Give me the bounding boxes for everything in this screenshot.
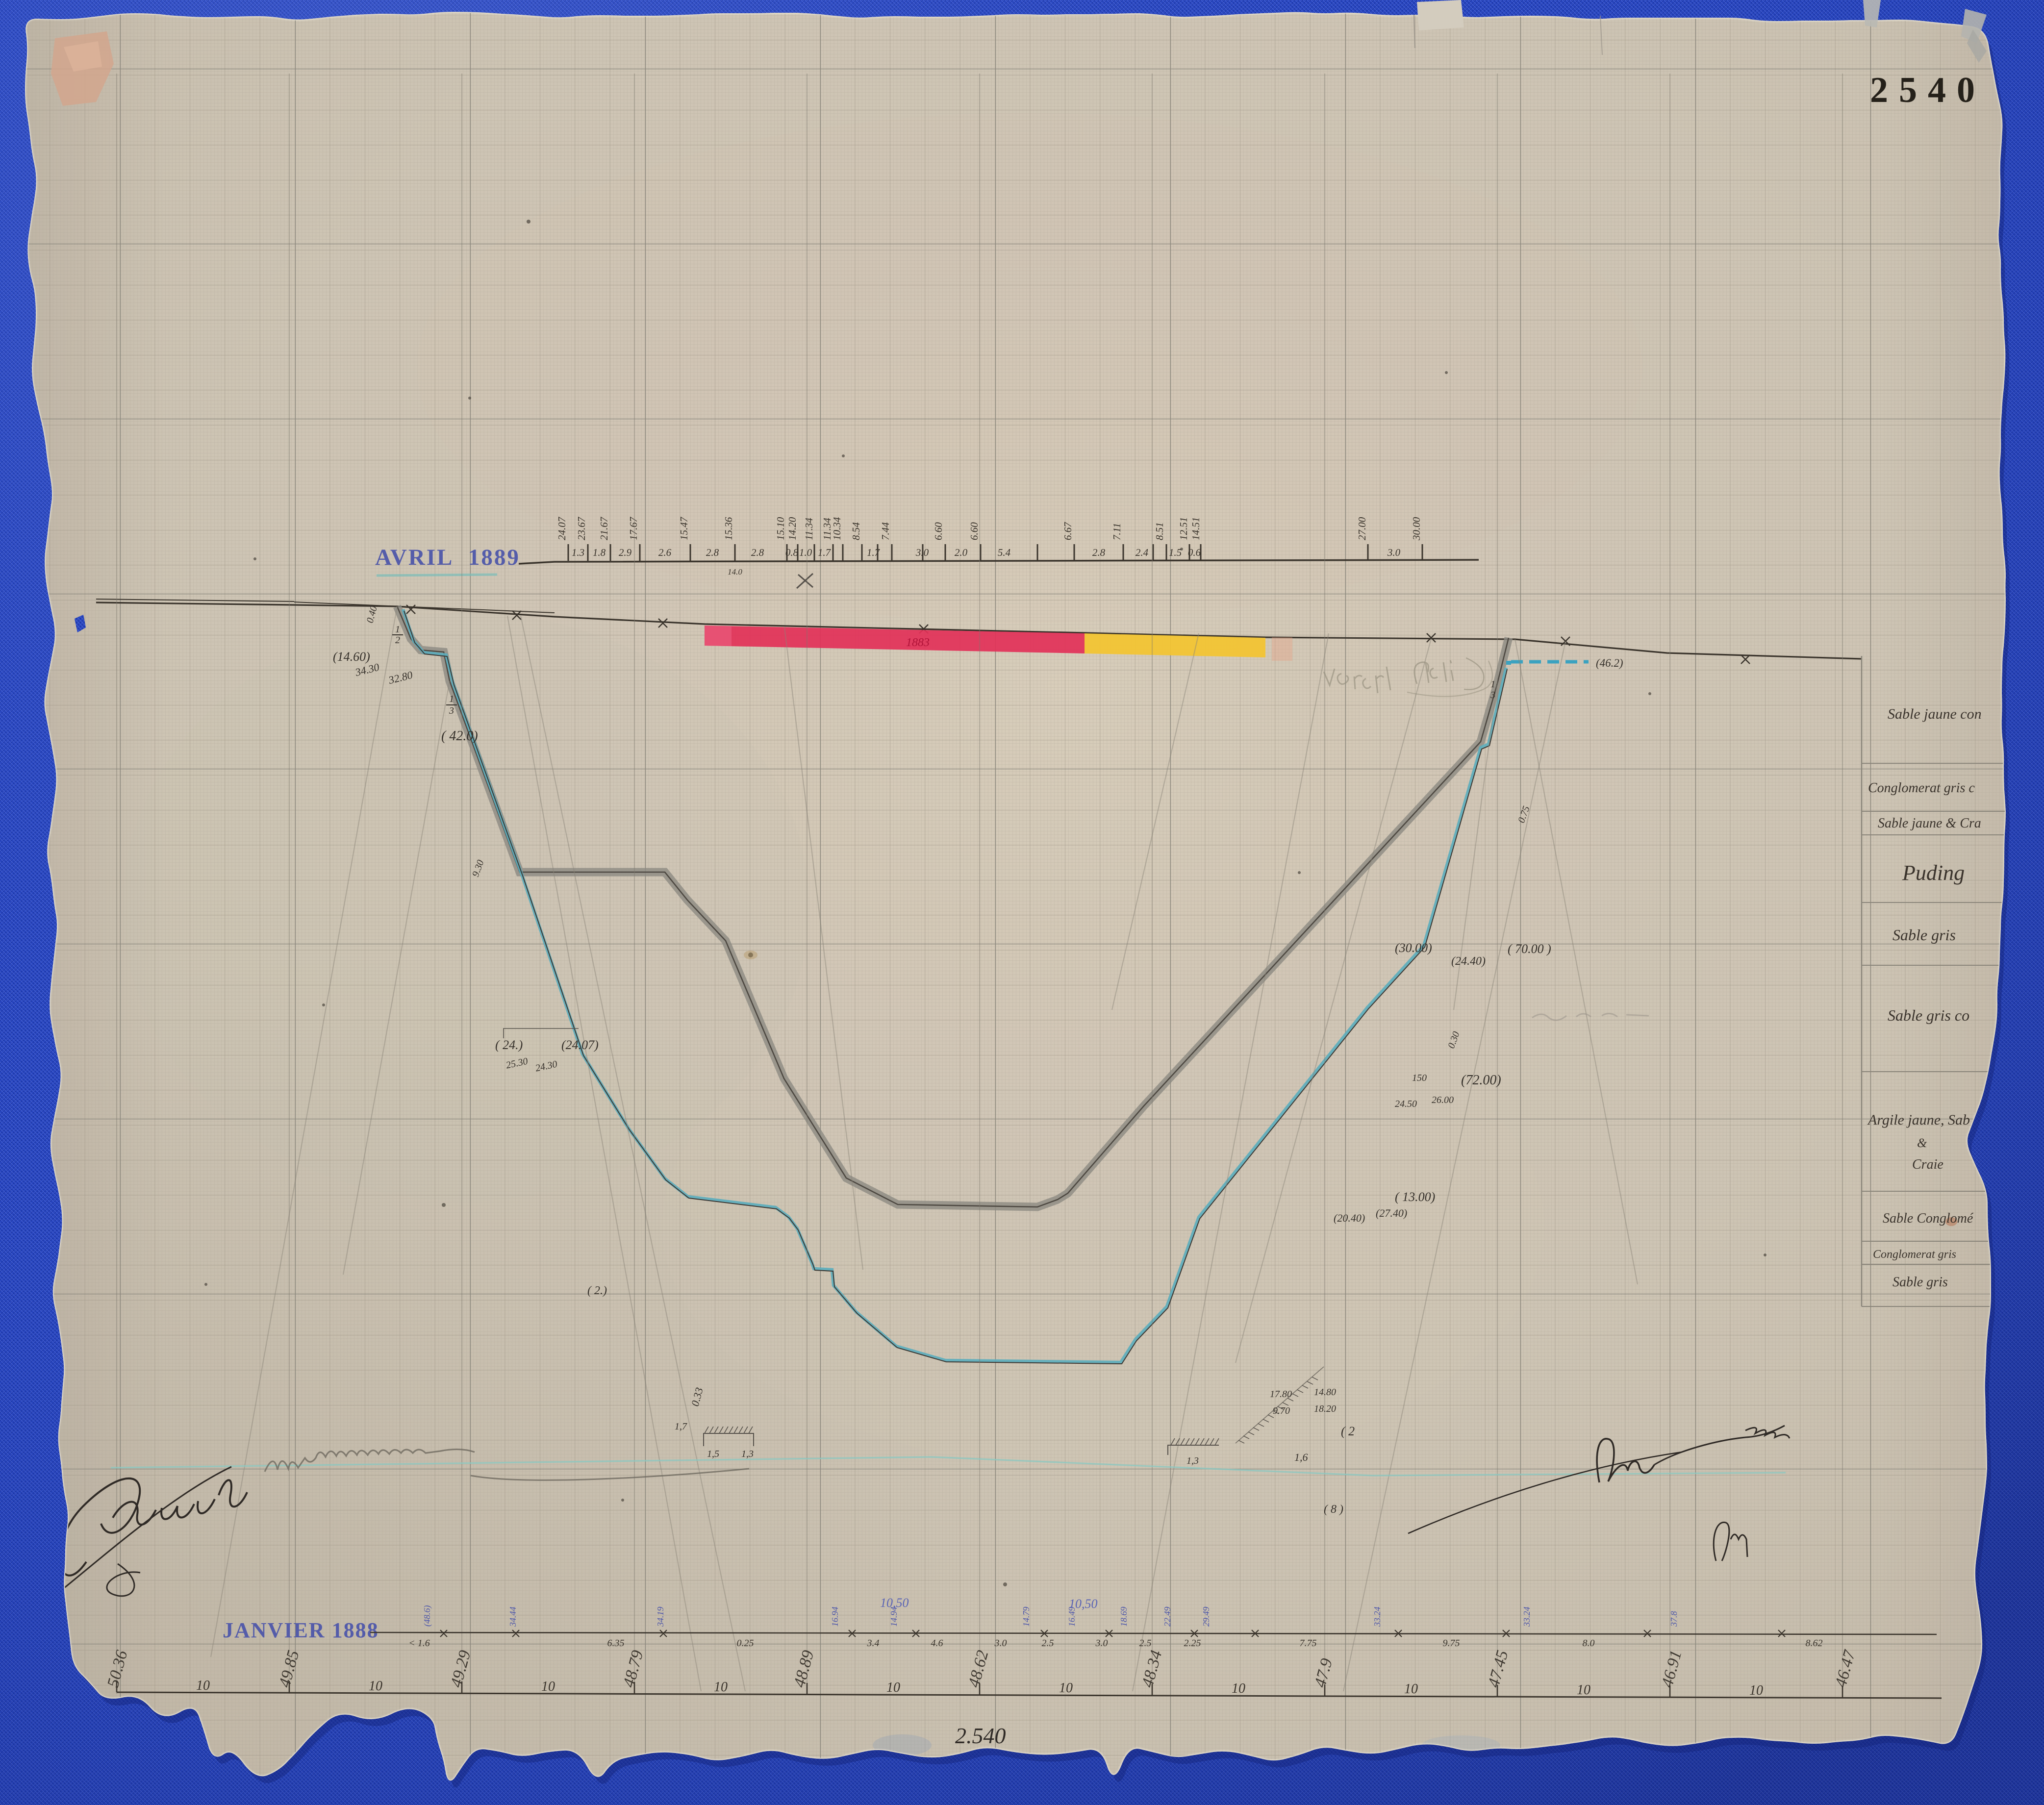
svg-text:24.07: 24.07 [556, 516, 568, 540]
svg-text:8.62: 8.62 [1806, 1638, 1823, 1649]
svg-text:0.25: 0.25 [737, 1638, 754, 1649]
svg-text:0.8: 0.8 [785, 547, 799, 558]
svg-text:< 1.6: < 1.6 [408, 1638, 430, 1649]
svg-text:26.00: 26.00 [1432, 1095, 1454, 1105]
svg-text:10: 10 [1059, 1680, 1073, 1696]
svg-text:(46.2): (46.2) [1596, 657, 1623, 669]
svg-text:(24.07): (24.07) [561, 1038, 599, 1052]
svg-text:12.51: 12.51 [1178, 517, 1189, 540]
svg-text:15.47: 15.47 [678, 516, 690, 540]
svg-text:24.50: 24.50 [1395, 1099, 1417, 1109]
svg-text:22.49: 22.49 [1162, 1607, 1172, 1627]
svg-text:10: 10 [541, 1679, 555, 1694]
svg-text:15.36: 15.36 [723, 517, 734, 540]
svg-text:1,5: 1,5 [707, 1449, 719, 1459]
svg-text:2.540: 2.540 [955, 1723, 1006, 1748]
svg-text:29.49: 29.49 [1201, 1607, 1211, 1627]
svg-text:10,50: 10,50 [1069, 1597, 1098, 1611]
svg-text:(20.40): (20.40) [1334, 1212, 1365, 1224]
svg-text:3.0: 3.0 [915, 547, 929, 558]
svg-text:10: 10 [1232, 1681, 1245, 1696]
svg-text:Conglomerat gris: Conglomerat gris [1873, 1248, 1956, 1261]
svg-text:33.24: 33.24 [1372, 1607, 1382, 1628]
svg-text:(48.6): (48.6) [422, 1605, 432, 1627]
svg-text:16.94: 16.94 [830, 1607, 840, 1627]
svg-text:9.70: 9.70 [1273, 1405, 1290, 1416]
svg-text:JANVIER 1888: JANVIER 1888 [223, 1618, 379, 1642]
svg-text:2.8: 2.8 [1092, 547, 1106, 558]
svg-text:18.69: 18.69 [1119, 1607, 1129, 1627]
svg-text:15.10: 15.10 [775, 517, 786, 540]
svg-text:3: 3 [449, 705, 454, 716]
svg-text:2.25: 2.25 [1184, 1638, 1201, 1649]
svg-text:2.5: 2.5 [1042, 1638, 1054, 1649]
svg-text:AVRIL 1889: AVRIL 1889 [375, 545, 520, 570]
svg-text:3.0: 3.0 [1095, 1638, 1108, 1649]
svg-text:( 70.00 ): ( 70.00 ) [1508, 942, 1551, 956]
svg-text:8.54: 8.54 [850, 522, 862, 540]
svg-text:4.6: 4.6 [931, 1638, 943, 1649]
svg-text:14.51: 14.51 [1190, 517, 1202, 540]
svg-text:11.34: 11.34 [803, 518, 815, 540]
svg-text:Craie: Craie [1912, 1157, 1943, 1172]
svg-text:(24.40): (24.40) [1451, 955, 1486, 968]
svg-text:0.6: 0.6 [1188, 547, 1201, 558]
svg-text:Sable jaune & Cra: Sable jaune & Cra [1878, 816, 1981, 831]
svg-text:1.5: 1.5 [1169, 547, 1182, 558]
svg-text:2.0: 2.0 [955, 547, 968, 558]
svg-text:Sable gris co: Sable gris co [1888, 1006, 1969, 1024]
svg-text:14.80: 14.80 [1314, 1387, 1336, 1398]
svg-text:7.11: 7.11 [1111, 523, 1123, 540]
svg-text:18.20: 18.20 [1314, 1404, 1336, 1414]
svg-text:1,7: 1,7 [675, 1421, 687, 1432]
svg-text:3.0: 3.0 [1387, 547, 1401, 558]
svg-text:33.24: 33.24 [1522, 1607, 1532, 1628]
svg-text:8.0: 8.0 [1583, 1638, 1595, 1649]
svg-text:37.8: 37.8 [1669, 1611, 1679, 1628]
svg-text:10: 10 [196, 1678, 210, 1693]
svg-text:1.7: 1.7 [818, 547, 832, 558]
svg-text:34.44: 34.44 [508, 1607, 518, 1628]
svg-text:2540: 2540 [1870, 70, 1986, 110]
svg-text:Sable jaune con: Sable jaune con [1888, 706, 1982, 722]
svg-text:5.4: 5.4 [998, 547, 1011, 558]
svg-text:2: 2 [395, 635, 400, 646]
svg-text:3.4: 3.4 [867, 1638, 880, 1649]
svg-text:( 24.): ( 24.) [495, 1038, 523, 1052]
svg-text:7.75: 7.75 [1300, 1638, 1317, 1649]
svg-text:8.51: 8.51 [1154, 522, 1165, 540]
svg-text:23.67: 23.67 [576, 516, 587, 540]
svg-text:30.00: 30.00 [1411, 517, 1422, 541]
svg-text:2.8: 2.8 [751, 547, 764, 558]
svg-text:14.0: 14.0 [728, 567, 742, 577]
svg-text:6.35: 6.35 [607, 1638, 625, 1649]
svg-text:(72.00): (72.00) [1461, 1073, 1501, 1088]
svg-text:2.9: 2.9 [619, 547, 632, 558]
svg-text:&: & [1917, 1136, 1927, 1150]
svg-text:14.20: 14.20 [786, 517, 798, 540]
svg-text:10,50: 10,50 [880, 1596, 909, 1610]
svg-text:9.75: 9.75 [1443, 1638, 1460, 1649]
svg-text:10: 10 [714, 1680, 728, 1695]
svg-text:1.8: 1.8 [593, 547, 606, 558]
svg-text:10.34: 10.34 [831, 517, 843, 540]
svg-text:1: 1 [395, 624, 400, 635]
svg-text:10: 10 [1749, 1683, 1763, 1698]
svg-text:(14.60): (14.60) [333, 650, 370, 664]
svg-text:14.79: 14.79 [1021, 1607, 1031, 1627]
svg-text:1,3: 1,3 [1186, 1455, 1199, 1466]
svg-text:10: 10 [886, 1680, 900, 1695]
svg-text:6.60: 6.60 [968, 522, 980, 540]
svg-text:1,6: 1,6 [1294, 1451, 1308, 1463]
svg-text:2.4: 2.4 [1136, 547, 1149, 558]
svg-text:1883: 1883 [906, 636, 930, 649]
svg-text:10: 10 [1404, 1681, 1418, 1697]
svg-text:10: 10 [1577, 1682, 1590, 1698]
svg-text:1,3: 1,3 [741, 1449, 754, 1459]
svg-text:17.80: 17.80 [1270, 1389, 1292, 1400]
svg-text:27.00: 27.00 [1356, 517, 1368, 540]
svg-text:Sable gris: Sable gris [1893, 1275, 1948, 1290]
svg-text:2.8: 2.8 [706, 547, 719, 558]
svg-text:( 2: ( 2 [1341, 1424, 1355, 1438]
svg-text:6.67: 6.67 [1062, 522, 1074, 540]
svg-text:3: 3 [1490, 690, 1495, 701]
svg-text:( 8 ): ( 8 ) [1324, 1503, 1343, 1516]
svg-text:3.0: 3.0 [994, 1638, 1007, 1649]
svg-text:( 42.0): ( 42.0) [441, 728, 478, 744]
svg-text:10: 10 [369, 1679, 382, 1694]
svg-text:7.44: 7.44 [880, 522, 891, 540]
svg-text:2.5: 2.5 [1139, 1638, 1152, 1649]
svg-text:1.7: 1.7 [867, 547, 881, 558]
svg-text:Conglomerat gris c: Conglomerat gris c [1868, 780, 1975, 796]
svg-text:34.19: 34.19 [656, 1607, 665, 1628]
svg-text:Sable Conglomé: Sable Conglomé [1883, 1211, 1974, 1226]
svg-text:Puding: Puding [1902, 861, 1965, 885]
svg-text:2.6: 2.6 [658, 547, 672, 558]
svg-text:( 13.00): ( 13.00) [1395, 1190, 1435, 1204]
svg-text:(30.00): (30.00) [1395, 941, 1432, 955]
svg-text:6.60: 6.60 [933, 522, 944, 540]
svg-text:Sable gris: Sable gris [1893, 926, 1956, 944]
svg-text:1.0: 1.0 [799, 547, 812, 558]
svg-text:21.67: 21.67 [598, 516, 610, 540]
svg-text:(27.40): (27.40) [1376, 1207, 1407, 1219]
svg-text:Argile jaune, Sab: Argile jaune, Sab [1867, 1112, 1970, 1128]
svg-text:1: 1 [449, 694, 454, 704]
svg-text:150: 150 [1412, 1073, 1427, 1083]
svg-text:1.3: 1.3 [572, 547, 584, 558]
svg-text:( 2.): ( 2.) [587, 1284, 607, 1297]
svg-text:17.67: 17.67 [628, 516, 639, 540]
